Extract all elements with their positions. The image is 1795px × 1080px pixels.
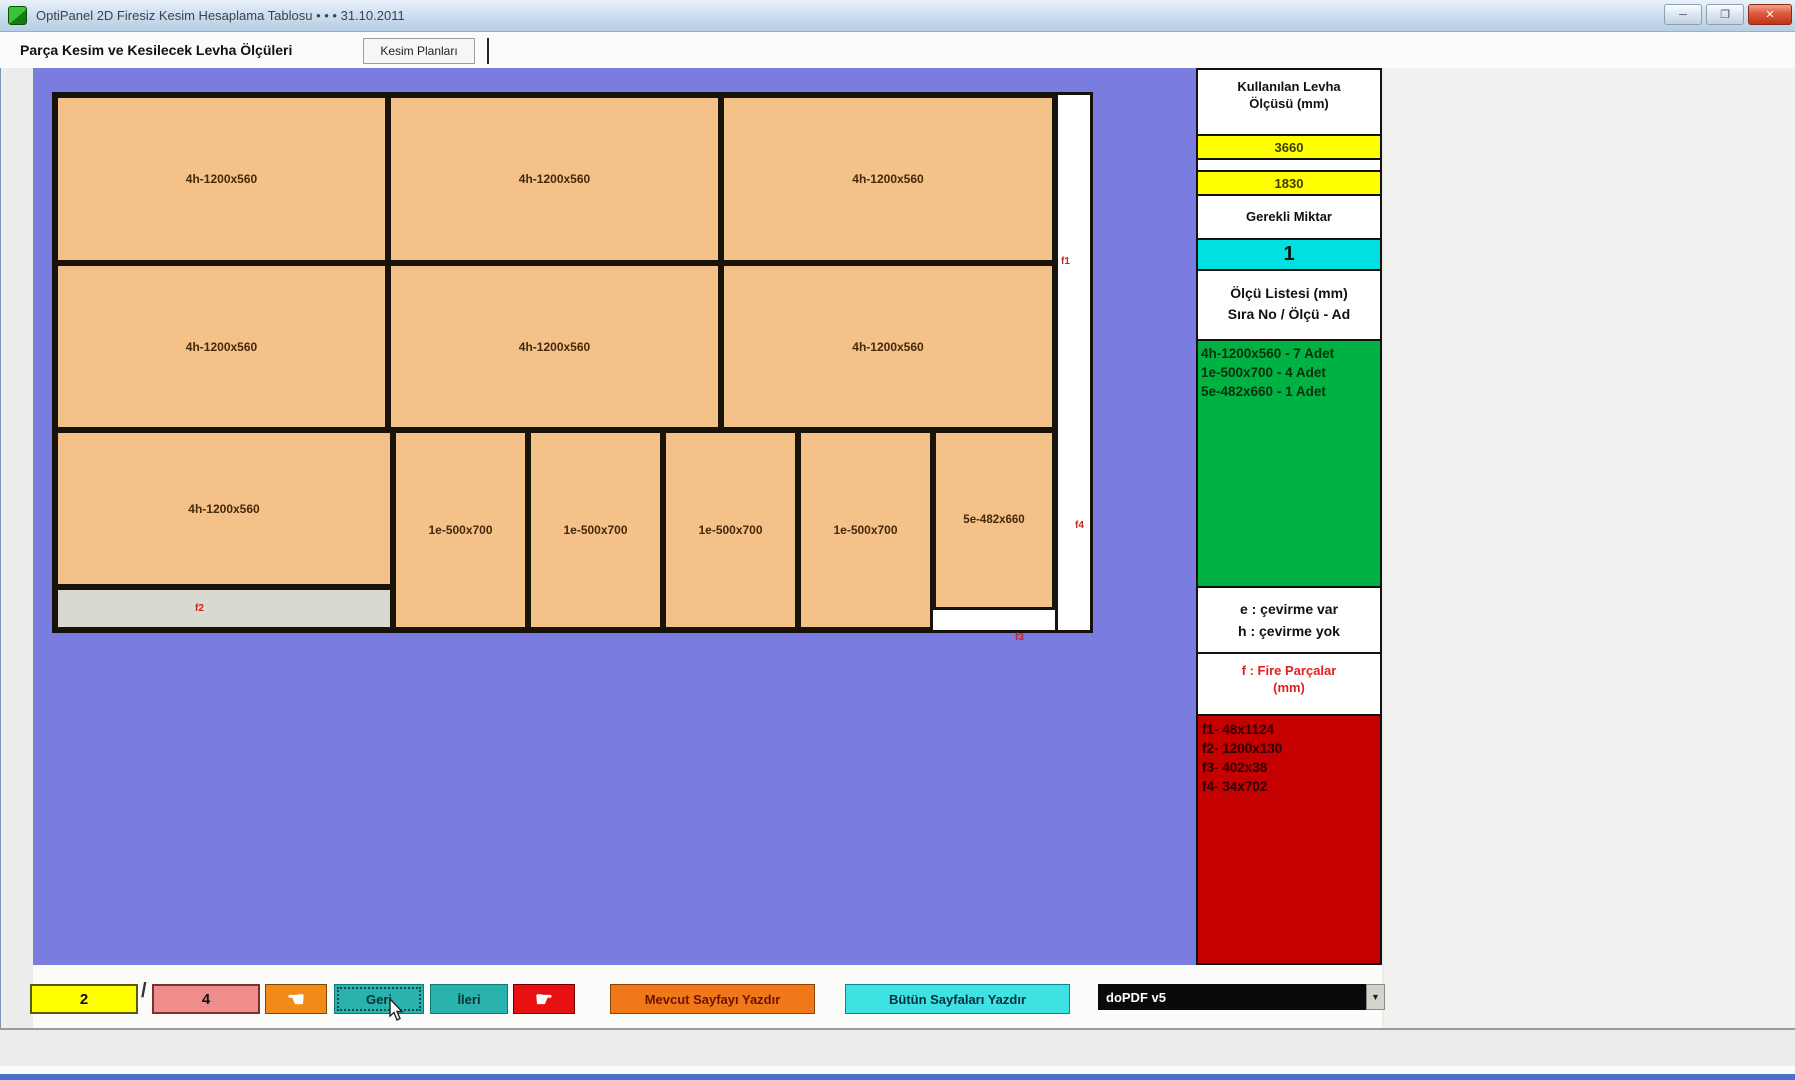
tab-parca-kesim[interactable]: Parça Kesim ve Kesilecek Levha Ölçüleri (20, 42, 292, 58)
panel-label: 4h-1200x560 (186, 172, 257, 186)
maximize-icon: ❐ (1720, 8, 1730, 21)
cut-panel: 4h-1200x560 (55, 263, 388, 430)
fire-list: f1- 48x1124 f2- 1200x130 f3- 402x38 f4- … (1198, 714, 1380, 963)
cut-panel: 1e-500x700 (528, 430, 663, 630)
total-pages-box: 4 (152, 984, 260, 1014)
sheet: 4h-1200x560 4h-1200x560 4h-1200x560 4h-1… (52, 92, 1093, 633)
app-icon (8, 6, 27, 25)
first-page-button[interactable]: ☚ (265, 984, 327, 1014)
required-qty-text: 1 (1283, 243, 1294, 266)
window-title: OptiPanel 2D Firesiz Kesim Hesaplama Tab… (36, 8, 405, 23)
sheet-height-text: 1830 (1275, 176, 1304, 191)
fire-marker-f1: f1 (1061, 256, 1070, 267)
page-separator: / (141, 980, 147, 1003)
printer-dropdown[interactable]: doPDF v5 (1098, 984, 1366, 1010)
print-current-label: Mevcut Sayfayı Yazdır (645, 992, 781, 1007)
cut-panel: 5e-482x660 (933, 430, 1055, 610)
print-all-label: Bütün Sayfaları Yazdır (889, 992, 1026, 1007)
bottom-gray-strip (0, 1030, 1795, 1066)
cut-panel: 1e-500x700 (663, 430, 798, 630)
close-button[interactable]: ✕ (1748, 4, 1792, 25)
maximize-button[interactable]: ❐ (1706, 4, 1744, 25)
fire-piece-f2 (55, 587, 393, 630)
size-list: 4h-1200x560 - 7 Adet 1e-500x700 - 4 Adet… (1198, 339, 1380, 588)
fire-marker-f2: f2 (195, 603, 204, 614)
current-page-box: 2 (30, 984, 138, 1014)
size-list-item: 4h-1200x560 - 7 Adet (1201, 344, 1380, 363)
required-qty-label: Gerekli Miktar (1198, 200, 1380, 238)
minimize-icon: ─ (1679, 9, 1687, 21)
waste-strip-border (1055, 95, 1058, 630)
forward-button[interactable]: İleri (430, 984, 508, 1014)
panel-label: 5e-482x660 (963, 514, 1024, 526)
fire-header-line1: f : Fire Parçalar (1198, 662, 1380, 679)
used-sheet-header: Kullanılan Levha Ölçüsü (mm) (1198, 72, 1380, 134)
panel-label: 1e-500x700 (563, 523, 627, 537)
panel-label: 4h-1200x560 (186, 340, 257, 354)
size-list-header-line2: Sıra No / Ölçü - Ad (1198, 304, 1380, 325)
panel-label: 1e-500x700 (833, 523, 897, 537)
legend-cevirme-var: e : çevirme var (1198, 598, 1380, 620)
legend-cevirme-yok: h : çevirme yok (1198, 620, 1380, 642)
print-current-page-button[interactable]: Mevcut Sayfayı Yazdır (610, 984, 815, 1014)
cut-panel: 4h-1200x560 (721, 263, 1055, 430)
fire-list-item: f4- 34x702 (1202, 777, 1380, 796)
last-page-button[interactable]: ☛ (513, 984, 575, 1014)
panel-label: 4h-1200x560 (188, 502, 259, 516)
panel-label: 4h-1200x560 (852, 172, 923, 186)
cut-panel: 4h-1200x560 (55, 430, 393, 587)
fire-list-item: f2- 1200x130 (1202, 739, 1380, 758)
minimize-button[interactable]: ─ (1664, 4, 1702, 25)
tab-caret (487, 38, 489, 64)
dropdown-arrow-icon[interactable]: ▼ (1366, 984, 1385, 1010)
printer-value: doPDF v5 (1106, 990, 1166, 1005)
size-list-header-line1: Ölçü Listesi (mm) (1198, 283, 1380, 304)
fire-marker-f4: f4 (1075, 520, 1084, 531)
back-button[interactable]: Geri (334, 984, 424, 1014)
cut-panel: 1e-500x700 (393, 430, 528, 630)
sheet-width-text: 3660 (1275, 140, 1304, 155)
fire-header: f : Fire Parçalar (mm) (1198, 652, 1380, 714)
used-sheet-header-line2: Ölçüsü (mm) (1198, 95, 1380, 112)
cut-panel: 4h-1200x560 (721, 95, 1055, 263)
size-list-item: 1e-500x700 - 4 Adet (1201, 363, 1380, 382)
size-list-item: 5e-482x660 - 1 Adet (1201, 382, 1380, 401)
sidebar: Kullanılan Levha Ölçüsü (mm) 3660 1830 G… (1196, 68, 1382, 965)
panel-label: 1e-500x700 (698, 523, 762, 537)
cut-panel: 1e-500x700 (798, 430, 933, 630)
mouse-cursor (388, 998, 406, 1022)
dropdown-arrow-glyph: ▼ (1371, 992, 1380, 1002)
size-list-header: Ölçü Listesi (mm) Sıra No / Ölçü - Ad (1198, 273, 1380, 339)
cut-panel: 4h-1200x560 (388, 263, 721, 430)
current-page-value: 2 (80, 991, 88, 1008)
cut-panel: 4h-1200x560 (388, 95, 721, 263)
fire-list-item: f3- 402x38 (1202, 758, 1380, 777)
close-icon: ✕ (1765, 8, 1774, 21)
total-pages-value: 4 (202, 991, 210, 1008)
panel-label: 4h-1200x560 (519, 340, 590, 354)
right-empty-area (1384, 68, 1795, 1028)
fire-list-item: f1- 48x1124 (1202, 720, 1380, 739)
required-qty-value: 1 (1198, 238, 1380, 271)
panel-label: 4h-1200x560 (519, 172, 590, 186)
sheet-width-value: 3660 (1198, 134, 1380, 160)
panel-label: 1e-500x700 (428, 523, 492, 537)
fire-header-line2: (mm) (1198, 679, 1380, 696)
panel-label: 4h-1200x560 (852, 340, 923, 354)
cut-panel: 4h-1200x560 (55, 95, 388, 263)
print-all-pages-button[interactable]: Bütün Sayfaları Yazdır (845, 984, 1070, 1014)
fire-marker-f3: f3 (1015, 632, 1024, 643)
sheet-height-value: 1830 (1198, 170, 1380, 196)
bottom-blue-strip (0, 1074, 1795, 1080)
rotation-legend: e : çevirme var h : çevirme yok (1198, 588, 1380, 652)
forward-button-label: İleri (457, 992, 480, 1007)
cutting-plan-canvas: 4h-1200x560 4h-1200x560 4h-1200x560 4h-1… (33, 68, 1196, 965)
hand-right-icon: ☛ (535, 987, 553, 1012)
bottom-white-strip (0, 1066, 1795, 1074)
used-sheet-header-line1: Kullanılan Levha (1198, 78, 1380, 95)
hand-left-icon: ☚ (287, 987, 305, 1012)
tab-kesim-planlari[interactable]: Kesim Planları (363, 38, 475, 64)
